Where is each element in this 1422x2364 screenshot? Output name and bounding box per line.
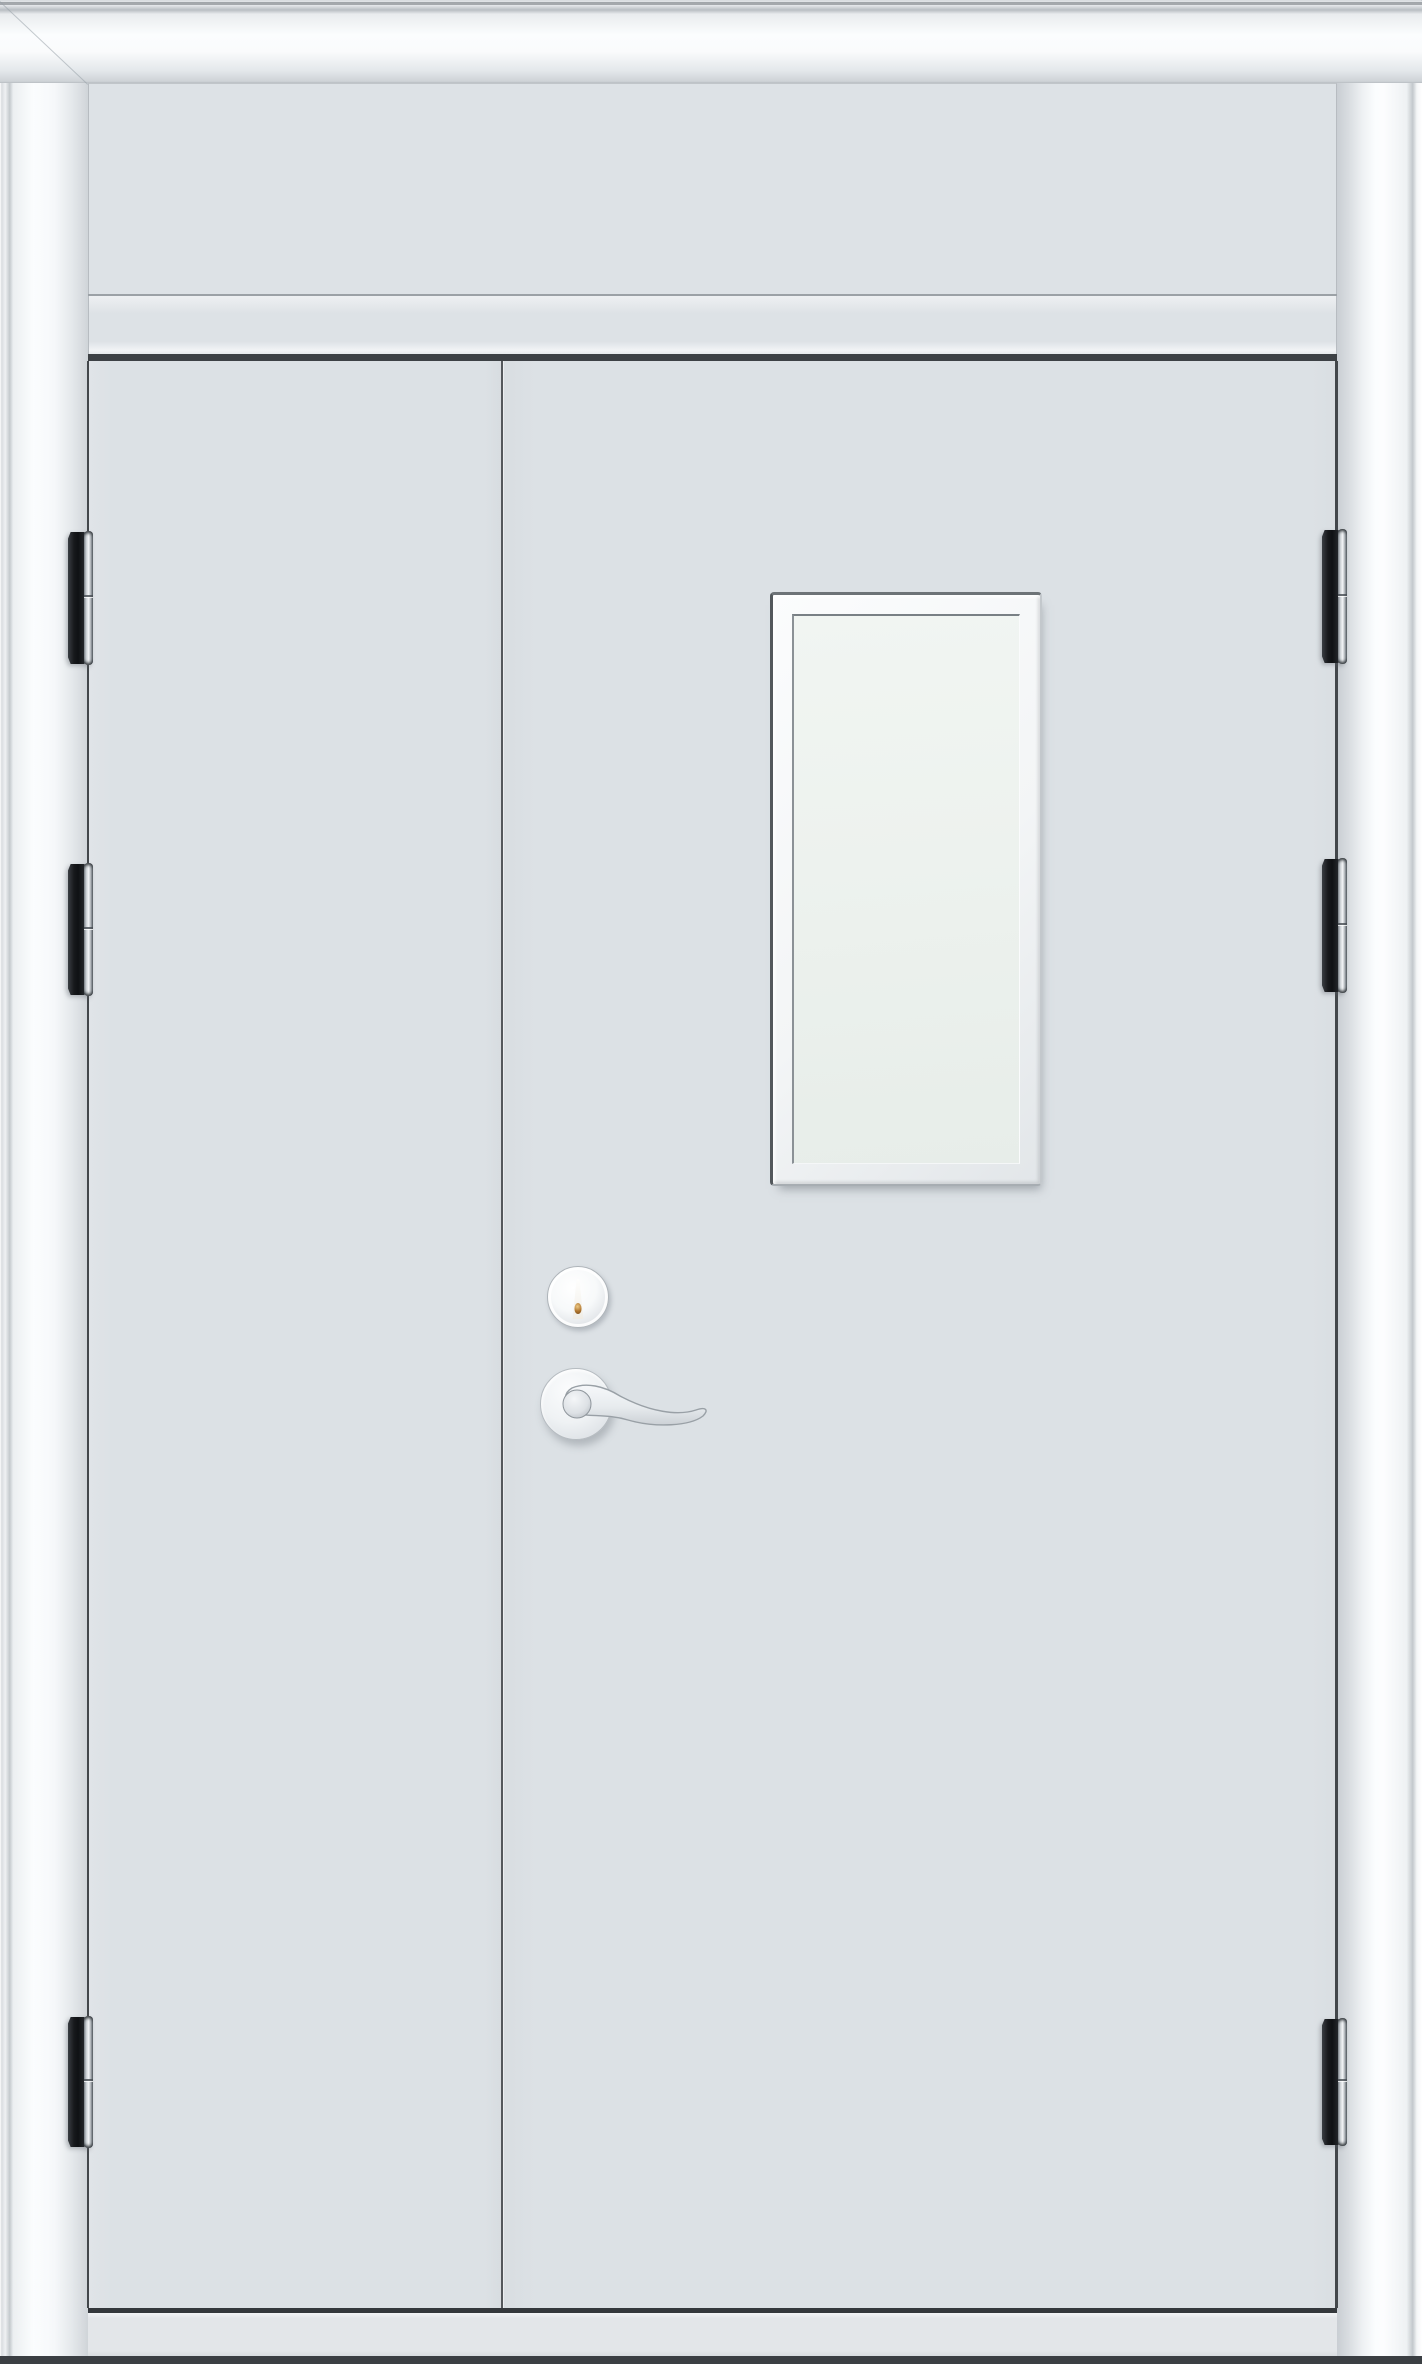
transom-panel: [88, 83, 1337, 294]
door-hinge-left: [68, 531, 93, 665]
door-hinge-left: [68, 863, 93, 996]
floor-shadow-strip: [0, 2356, 1422, 2364]
hinge-leaf-dark: [1322, 859, 1339, 992]
door-frame-head: [0, 0, 1422, 83]
door-leaf-narrow: [88, 361, 502, 2308]
hinge-knuckle: [84, 531, 94, 665]
lever-handle: [538, 1370, 723, 1450]
hinge-leaf-dark: [1322, 530, 1339, 663]
hinge-leaf-dark: [68, 2017, 85, 2147]
door-frame-right-jamb: [1337, 83, 1422, 2364]
keyhole-slot: [575, 1303, 582, 1314]
door-hinge-left: [68, 2016, 93, 2148]
hinge-knuckle-seam: [1338, 923, 1348, 925]
vision-window-glass: [792, 614, 1020, 1164]
meeting-stile-line: [501, 361, 503, 2308]
hinge-knuckle: [84, 2016, 94, 2148]
door-top-gap-shadow: [88, 354, 1337, 361]
threshold-sill: [88, 2313, 1337, 2356]
hinge-leaf-dark: [68, 864, 85, 995]
photo-top-edge-line: [0, 2, 1422, 5]
hinge-leaf-dark: [1322, 2019, 1339, 2145]
hinge-knuckle-seam: [84, 2079, 94, 2081]
hinge-knuckle-seam: [1338, 2079, 1348, 2081]
door-hinge-right: [1322, 529, 1347, 664]
lever-hub: [563, 1390, 591, 1418]
door-hinge-right: [1322, 2018, 1347, 2146]
transom-bottom-rail: [88, 296, 1337, 354]
hinge-knuckle: [1338, 2018, 1348, 2146]
hinge-knuckle: [1338, 858, 1348, 993]
hinge-knuckle-seam: [84, 927, 94, 929]
door-product-photo: [0, 0, 1422, 2364]
hinge-knuckle: [1338, 529, 1348, 664]
hinge-knuckle-seam: [1338, 594, 1348, 596]
door-hinge-right: [1322, 858, 1347, 993]
cylinder-lock: [547, 1266, 609, 1328]
keyhole: [571, 1279, 585, 1319]
hinge-leaf-dark: [68, 532, 85, 664]
hinge-knuckle-seam: [84, 595, 94, 597]
hinge-knuckle: [84, 863, 94, 996]
